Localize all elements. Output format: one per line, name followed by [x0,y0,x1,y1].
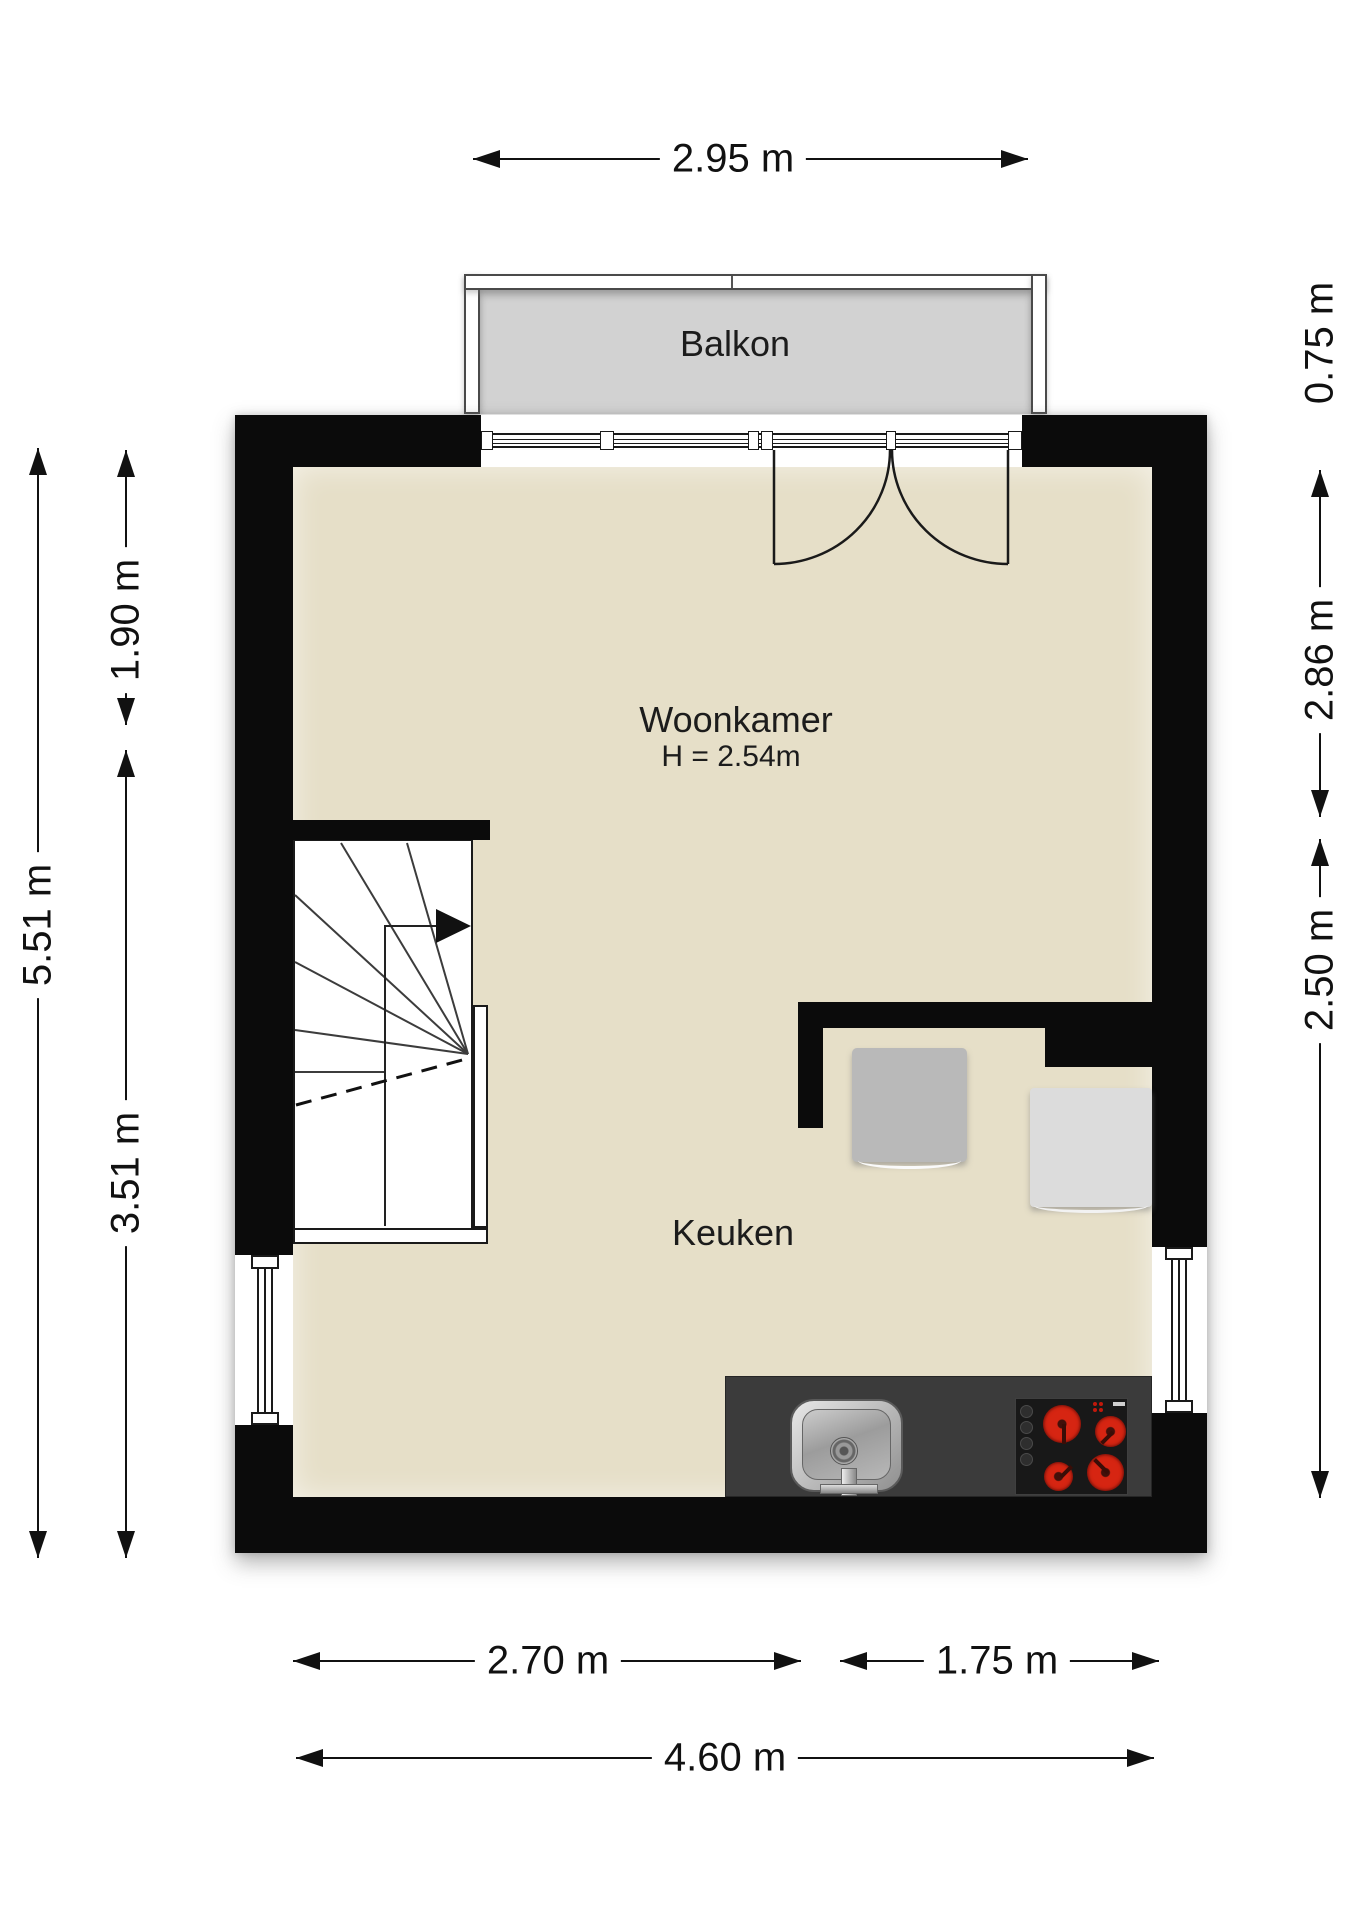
stove-icon [1015,1398,1128,1495]
arrow-left-icon [473,150,500,168]
stove-knob [1020,1405,1033,1418]
living-room-height: H = 2.54m [661,740,800,774]
window-mullion [761,431,773,450]
window-frame-end [481,431,493,450]
balcony-wall-left [464,274,480,414]
arrow-up-icon [1311,839,1329,866]
stove-indicator [1093,1402,1097,1406]
arrow-up-icon [29,448,47,475]
arrow-down-icon [29,1531,47,1558]
arrow-down-icon [1311,790,1329,817]
dim-bottom-left: 2.70 m [475,1639,621,1684]
wall-left-upper [235,467,293,1255]
sink-drain [830,1437,858,1465]
stairs-top-wall [293,820,490,840]
right-window-frame-bottom [1165,1400,1193,1413]
stove-logo [1113,1402,1125,1406]
arrow-down-icon [1311,1471,1329,1498]
arrow-right-icon [1127,1749,1154,1767]
kitchen-appliance [1030,1088,1152,1207]
burner [1087,1454,1124,1491]
dim-right-lower: 2.50 m [1298,897,1343,1043]
left-window-frame-bottom [251,1412,279,1425]
kitchen-divider-wall [798,1002,1152,1028]
burner [1095,1416,1126,1447]
stove-knob [1020,1453,1033,1466]
right-window [1171,1260,1187,1400]
dim-left-total: 5.51 m [16,852,61,998]
stove-indicator [1093,1408,1097,1412]
stairs-threshold [293,1228,488,1244]
dim-left-upper: 1.90 m [104,547,149,693]
stove-indicator [1099,1402,1103,1406]
right-window-frame-top [1165,1247,1193,1260]
dim-balcony-depth: 0.75 m [1298,270,1343,416]
wall-top-right [1022,415,1207,467]
arrow-left-icon [840,1652,867,1670]
arrow-right-icon [774,1652,801,1670]
balcony-label: Balkon [680,323,790,365]
stairs-side-wall [473,1005,488,1228]
faucet-base [820,1484,878,1494]
stove-knob [1020,1437,1033,1450]
dim-top-width: 2.95 m [660,137,806,182]
dim-left-lower: 3.51 m [104,1100,149,1246]
arrow-up-icon [117,450,135,477]
balcony-wall-right [1031,274,1047,414]
burner [1043,1405,1081,1443]
dim-right-upper: 2.86 m [1298,587,1343,733]
kitchen-divider-wall-thick [1045,1028,1152,1067]
arrow-up-icon [117,750,135,777]
dim-bottom-total: 4.60 m [652,1736,798,1781]
balcony-railing-divider [731,276,733,288]
burner [1044,1462,1073,1491]
stove-knob [1020,1421,1033,1434]
arrow-right-icon [1132,1652,1159,1670]
arrow-right-icon [1001,150,1028,168]
arrow-up-icon [1311,470,1329,497]
wall-top-left [235,415,481,467]
dim-bottom-right: 1.75 m [924,1639,1070,1684]
floor-plan: Balkon [0,0,1358,1920]
dim-line-left-total [37,448,39,1558]
window-mullion [600,431,614,450]
window-frame-end [1008,431,1022,450]
door-meeting-stile [886,431,896,450]
kitchen-label: Keuken [672,1212,794,1254]
kitchen-divider-wall-stub [798,1028,823,1128]
arrow-down-icon [117,1531,135,1558]
window-mullion [748,431,759,450]
arrow-left-icon [293,1652,320,1670]
left-window [257,1269,273,1412]
stairs [293,840,473,1228]
wall-bottom [235,1497,1207,1553]
wall-right-upper [1152,467,1207,1247]
left-window-frame-top [251,1255,279,1269]
stove-indicator [1099,1408,1103,1412]
balcony-railing [464,274,1047,290]
dining-table [852,1048,967,1162]
living-room-label: Woonkamer [639,699,832,741]
arrow-down-icon [117,698,135,725]
arrow-left-icon [296,1749,323,1767]
